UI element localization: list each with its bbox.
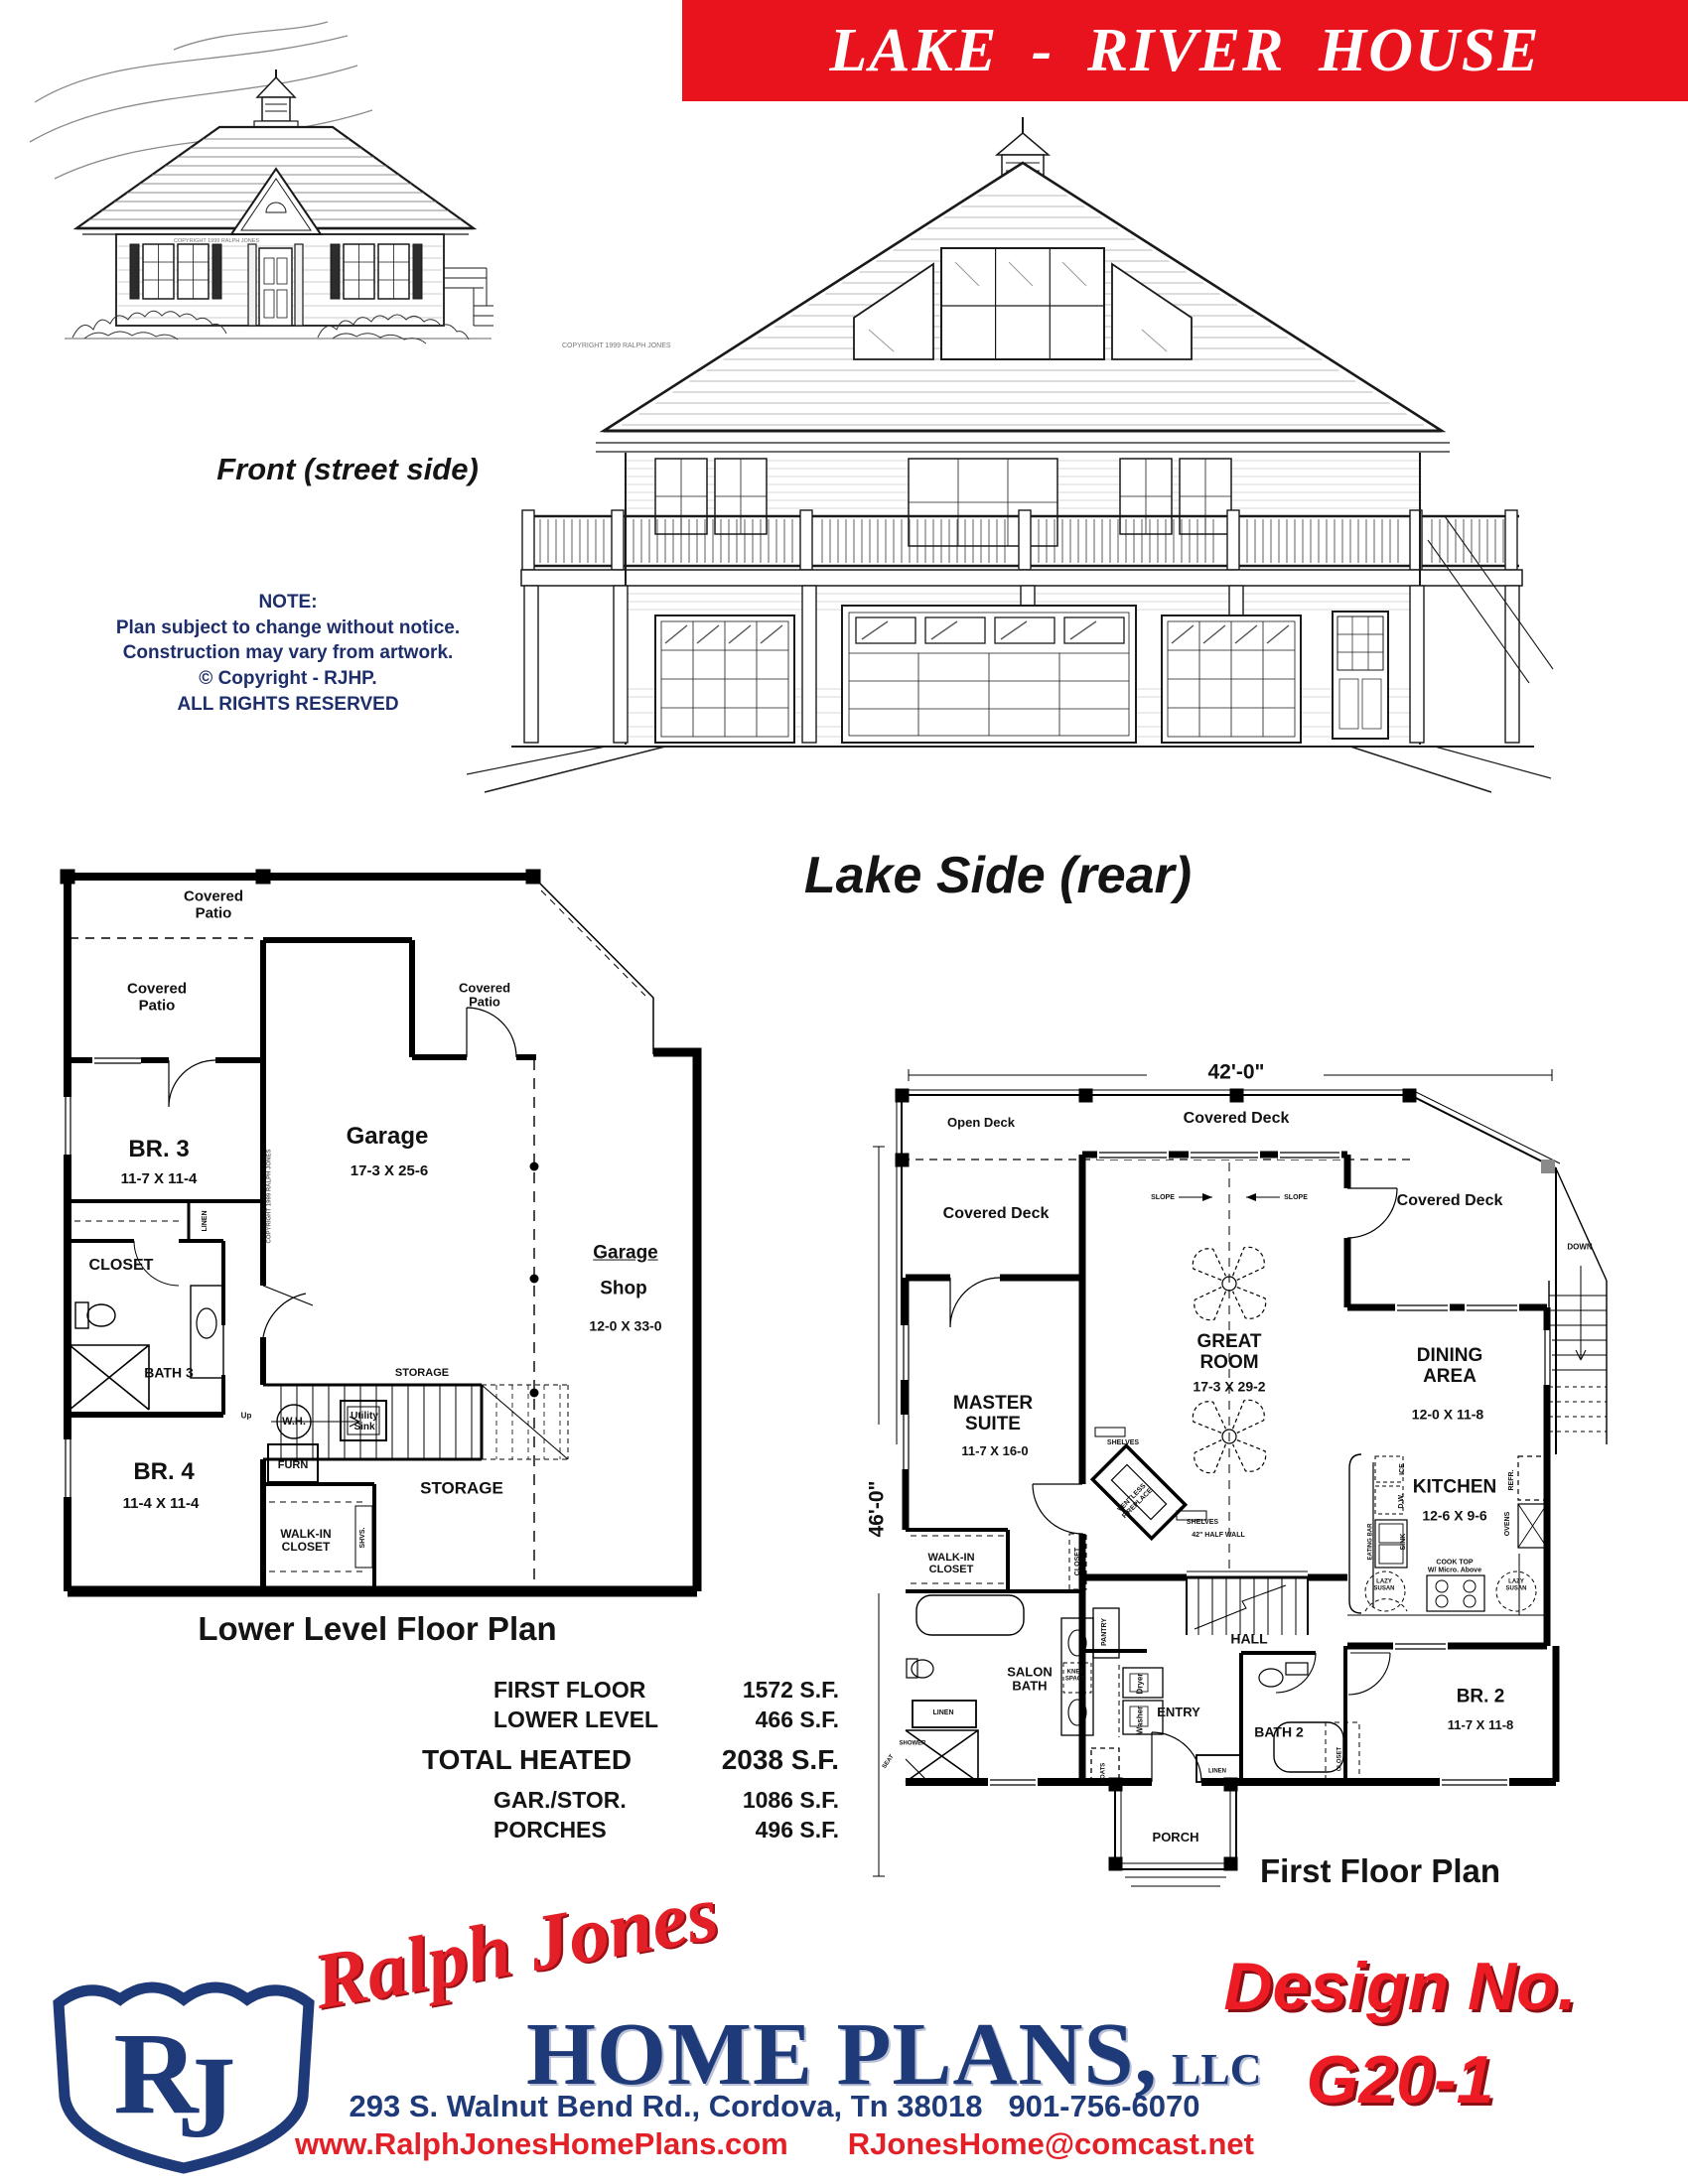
square-footage-table: FIRST FLOOR1572 S.F.LOWER LEVEL466 S.F.T… <box>422 1674 839 1846</box>
plan-label: STORAGE <box>420 1480 503 1499</box>
plan-label: SHOWER <box>900 1741 926 1748</box>
plan-label: HALL <box>1230 1631 1267 1646</box>
plan-label: 11-7 X 16-0 <box>961 1444 1028 1458</box>
plan-label: Covered Patio <box>184 889 243 922</box>
deck-beam <box>521 570 1522 586</box>
area-label: GAR./STOR. <box>422 1787 690 1814</box>
plan-label: Covered Patio <box>127 982 187 1015</box>
plan-label: BATH 3 <box>144 1365 194 1380</box>
plan-label: 42'-0" <box>1208 1060 1265 1083</box>
plan-label: BR. 4 <box>133 1459 194 1485</box>
plan-label: W.H. <box>282 1416 306 1428</box>
note-line: Construction may vary from artwork. <box>109 640 467 666</box>
plan-label: ENTRY <box>1157 1706 1200 1719</box>
area-row: TOTAL HEATED2038 S.F. <box>422 1744 839 1776</box>
cupola <box>254 69 298 127</box>
first-plan-caption: First Floor Plan <box>1172 1852 1589 1890</box>
note-rights: ALL RIGHTS RESERVED <box>109 692 467 718</box>
front-copyright-text: COPYRIGHT 1999 RALPH JONES <box>174 238 259 244</box>
area-label: FIRST FLOOR <box>422 1677 690 1704</box>
plan-label: SLOPE <box>1284 1194 1308 1202</box>
area-value: 496 S.F. <box>690 1817 839 1843</box>
lower-level-floor-plan: Covered PatioCovered PatioCovered PatioB… <box>40 849 745 1643</box>
rear-copyright-text: COPYRIGHT 1999 RALPH JONES <box>562 342 671 349</box>
monogram-j: J <box>178 2032 236 2162</box>
lower-plan-caption: Lower Level Floor Plan <box>134 1610 621 1648</box>
plan-label: DOWN <box>1567 1244 1592 1253</box>
plan-label: 12-0 X 33-0 <box>589 1318 661 1333</box>
plan-label: KNEE SPACE <box>1065 1669 1085 1682</box>
plan-label: CLOSET <box>1337 1747 1344 1771</box>
plan-label: SHELVES <box>1107 1439 1139 1447</box>
plan-label: WALK-IN CLOSET <box>280 1528 331 1554</box>
plan-label: BR. 2 <box>1457 1688 1505 1708</box>
plan-label: Open Deck <box>947 1116 1015 1130</box>
plan-label: LAZY SUSAN <box>1373 1578 1394 1591</box>
plan-label: REFR. <box>1508 1470 1516 1491</box>
plan-label: PORCH <box>1153 1831 1199 1844</box>
front-elevation-drawing: COPYRIGHT 1999 RALPH JONES <box>25 8 506 460</box>
house-plan-brochure-page: LAKE - RIVER HOUSE <box>0 0 1688 2184</box>
plan-label: 17-3 X 25-6 <box>351 1163 428 1180</box>
plan-label: BR. 3 <box>128 1137 189 1162</box>
plan-label: CLOSET <box>89 1257 154 1275</box>
plan-label: D.W. <box>1398 1493 1406 1508</box>
area-row: FIRST FLOOR1572 S.F. <box>422 1677 839 1704</box>
eave-band <box>596 431 1450 452</box>
plan-label: CLOSET <box>1074 1548 1082 1575</box>
plan-label: LINEN <box>202 1211 210 1232</box>
plan-label: LINEN <box>1208 1769 1226 1776</box>
area-row: LOWER LEVEL466 S.F. <box>422 1706 839 1733</box>
street-address: 293 S. Walnut Bend Rd., Cordova, Tn 3801… <box>350 2089 983 2123</box>
area-row: PORCHES496 S.F. <box>422 1817 839 1843</box>
plan-label: WALK-IN CLOSET <box>927 1552 974 1575</box>
plan-label: COATS <box>1101 1763 1108 1784</box>
area-value: 1086 S.F. <box>690 1787 839 1814</box>
rear-elevation-drawing: COPYRIGHT 1999 RALPH JONES <box>467 101 1579 798</box>
plan-label: 11-7 X 11-4 <box>121 1171 198 1188</box>
plan-label: LINEN <box>933 1709 954 1717</box>
rear-entry-door <box>1162 612 1388 743</box>
plan-label: Covered Deck <box>943 1205 1050 1223</box>
first-floor-plan: 42'-0"Open DeckCovered DeckCovered DeckC… <box>849 1027 1618 1901</box>
plan-label: KITCHEN <box>1413 1478 1496 1499</box>
plan-label: 17-3 X 29-2 <box>1193 1379 1265 1394</box>
plan-label: GREAT ROOM <box>1196 1332 1261 1374</box>
plan-label: SHELVES <box>1187 1519 1218 1527</box>
plan-label: Up <box>241 1413 252 1422</box>
plan-label: Utility Sink <box>351 1411 378 1433</box>
plan-label: SHVS. <box>359 1527 367 1548</box>
plan-label: LAZY SUSAN <box>1505 1578 1526 1591</box>
note-copyright: © Copyright - RJHP. <box>109 666 467 692</box>
plan-label: Dryer <box>1137 1674 1146 1695</box>
address-line: 293 S. Walnut Bend Rd., Cordova, Tn 3801… <box>298 2089 1251 2124</box>
plan-label: 42" HALF WALL <box>1192 1532 1244 1540</box>
plan-label: Washer <box>1137 1706 1146 1735</box>
garage-door-single-left <box>655 615 794 743</box>
plan-label: Shop <box>600 1280 647 1300</box>
area-label: PORCHES <box>422 1817 690 1843</box>
brand-suffix-text: LLC <box>1172 2045 1261 2094</box>
plan-label: EATING BAR <box>1368 1524 1375 1561</box>
website-url[interactable]: www.RalphJonesHomePlans.com <box>295 2126 788 2161</box>
plan-label: 11-7 X 11-8 <box>1448 1718 1514 1732</box>
plan-label: BATH 2 <box>1254 1724 1304 1739</box>
page-title: LAKE - RIVER HOUSE <box>829 16 1540 86</box>
note-line: Plan subject to change without notice. <box>109 615 467 641</box>
plan-label: SLOPE <box>1151 1194 1175 1202</box>
plan-label: STORAGE <box>395 1367 449 1379</box>
plan-label: 46'-0" <box>865 1481 888 1538</box>
rear-elevation-caption: Lake Side (rear) <box>760 846 1236 905</box>
area-row: GAR./STOR.1086 S.F. <box>422 1787 839 1814</box>
first-plan-drawing <box>849 1027 1618 1901</box>
plan-note: NOTE: Plan subject to change without not… <box>109 590 467 717</box>
plan-label: 11-4 X 11-4 <box>123 1496 200 1513</box>
plan-label: ICE <box>1399 1463 1407 1475</box>
contact-line: www.RalphJonesHomePlans.comRJonesHome@co… <box>228 2126 1321 2162</box>
plan-label: COPYRIGHT 1999 RALPH JONES <box>267 1149 274 1243</box>
plan-label: SALON BATH <box>1007 1666 1053 1695</box>
plan-label: FURN <box>278 1459 309 1471</box>
plan-label: Garage <box>347 1124 429 1150</box>
plan-label: DINING AREA <box>1417 1346 1483 1388</box>
upper-windows <box>655 459 1231 546</box>
area-label: TOTAL HEATED <box>422 1744 658 1776</box>
plan-label: MASTER SUITE <box>953 1394 1033 1435</box>
area-label: LOWER LEVEL <box>422 1706 690 1733</box>
plan-label: Garage <box>593 1244 657 1265</box>
title-banner: LAKE - RIVER HOUSE <box>682 0 1688 101</box>
plan-label: COOK TOP W/ Micro. Above <box>1428 1559 1481 1573</box>
plan-label: OVENS <box>1504 1512 1512 1537</box>
area-value: 1572 S.F. <box>690 1677 839 1704</box>
plan-label: Covered Patio <box>459 982 510 1011</box>
note-heading: NOTE: <box>109 590 467 615</box>
phone-number: 901-756-6070 <box>1008 2089 1199 2123</box>
front-elevation-caption: Front (street side) <box>199 452 496 487</box>
area-value: 466 S.F. <box>690 1706 839 1733</box>
plan-label: Covered Deck <box>1184 1110 1290 1128</box>
plan-label: SINK <box>1400 1534 1408 1551</box>
plan-label: 12-0 X 11-8 <box>1412 1407 1483 1422</box>
plan-label: PANTRY <box>1101 1618 1109 1646</box>
email-address[interactable]: RJonesHome@comcast.net <box>848 2126 1254 2161</box>
plan-label: Covered Deck <box>1397 1192 1503 1210</box>
area-value: 2038 S.F. <box>658 1744 839 1776</box>
plan-label: 12-6 X 9-6 <box>1422 1508 1486 1523</box>
garage-door-double-center <box>842 606 1136 743</box>
